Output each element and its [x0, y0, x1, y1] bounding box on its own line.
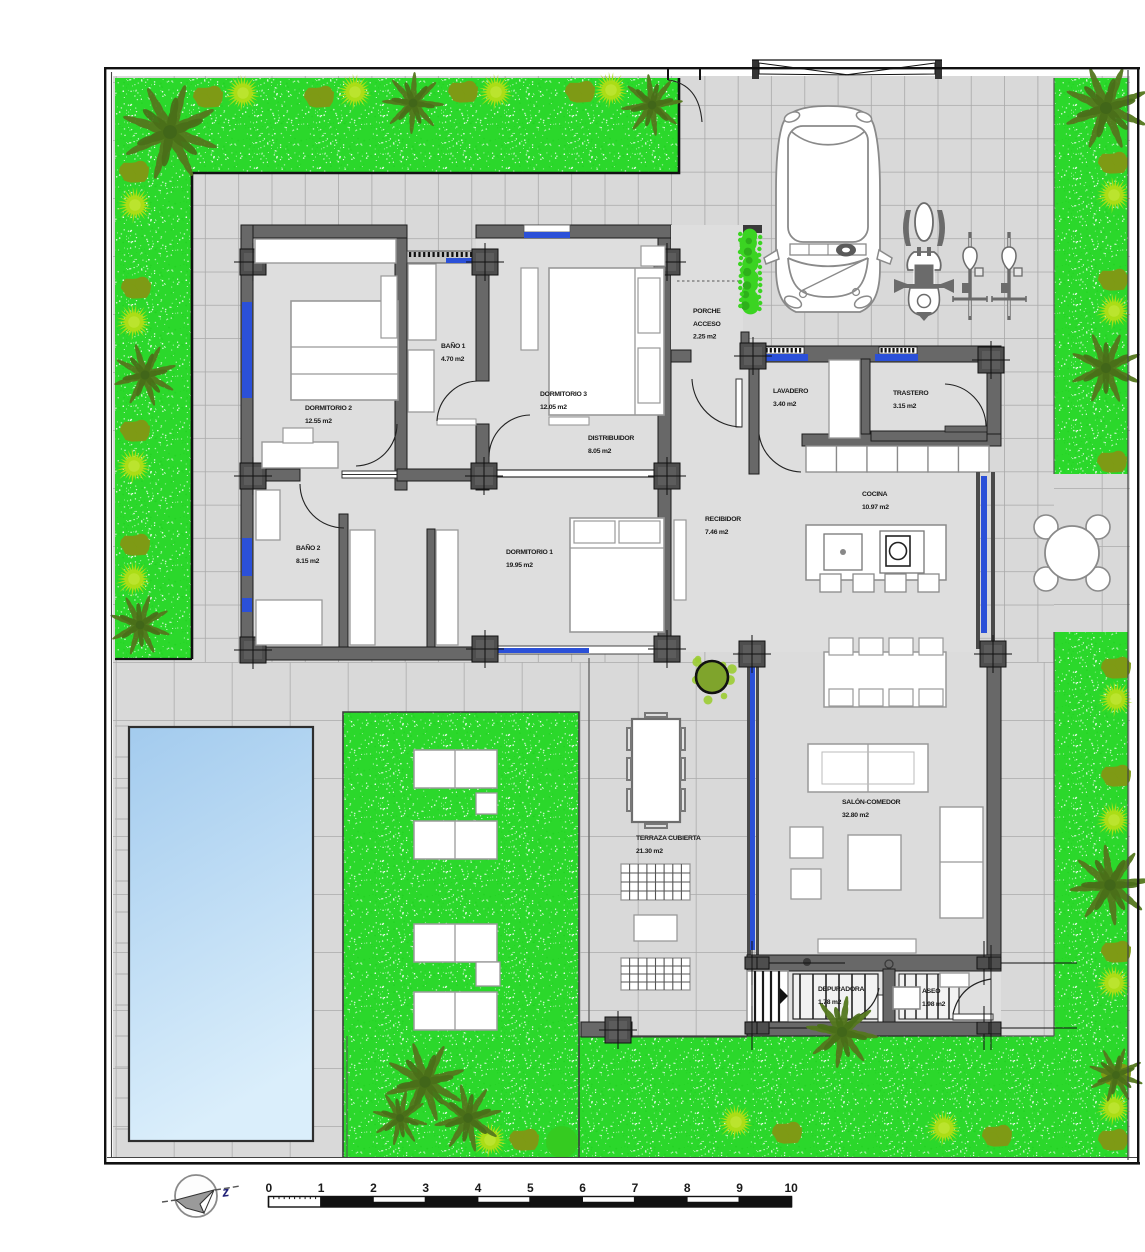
svg-text:6: 6	[579, 1181, 586, 1195]
svg-text:5: 5	[527, 1181, 534, 1195]
svg-text:0: 0	[266, 1181, 273, 1195]
svg-text:7: 7	[632, 1181, 639, 1195]
svg-text:1: 1	[318, 1181, 325, 1195]
svg-text:3: 3	[422, 1181, 429, 1195]
svg-text:10: 10	[785, 1181, 799, 1195]
svg-text:4: 4	[475, 1181, 482, 1195]
svg-text:8: 8	[684, 1181, 691, 1195]
svg-text:9: 9	[736, 1181, 743, 1195]
svg-text:2: 2	[370, 1181, 377, 1195]
